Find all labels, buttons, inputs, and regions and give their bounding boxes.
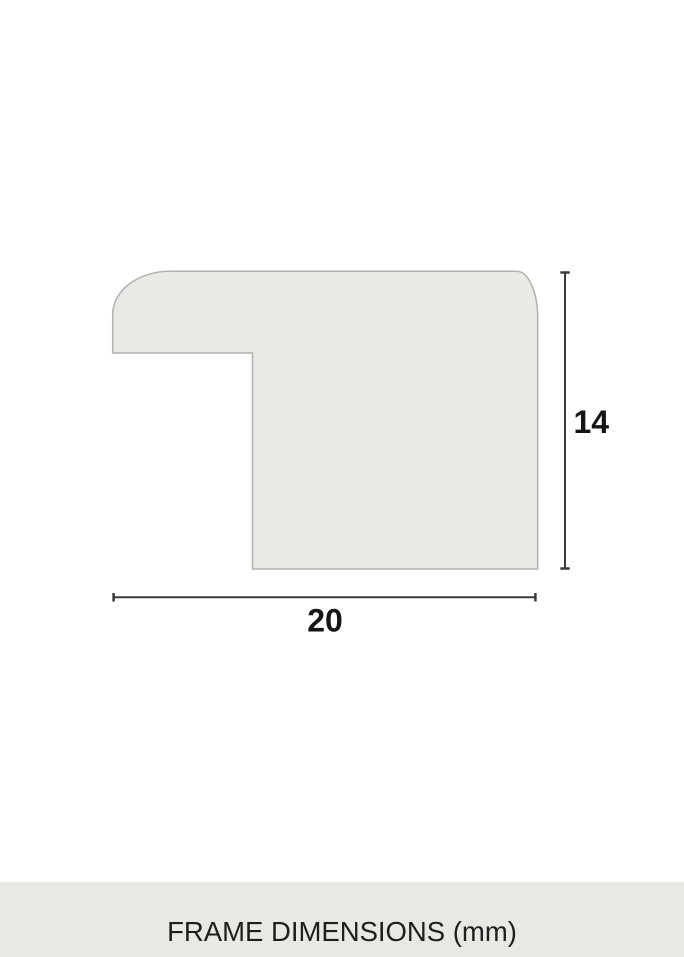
svg-text:14: 14 <box>574 404 610 440</box>
svg-text:20: 20 <box>307 603 343 639</box>
